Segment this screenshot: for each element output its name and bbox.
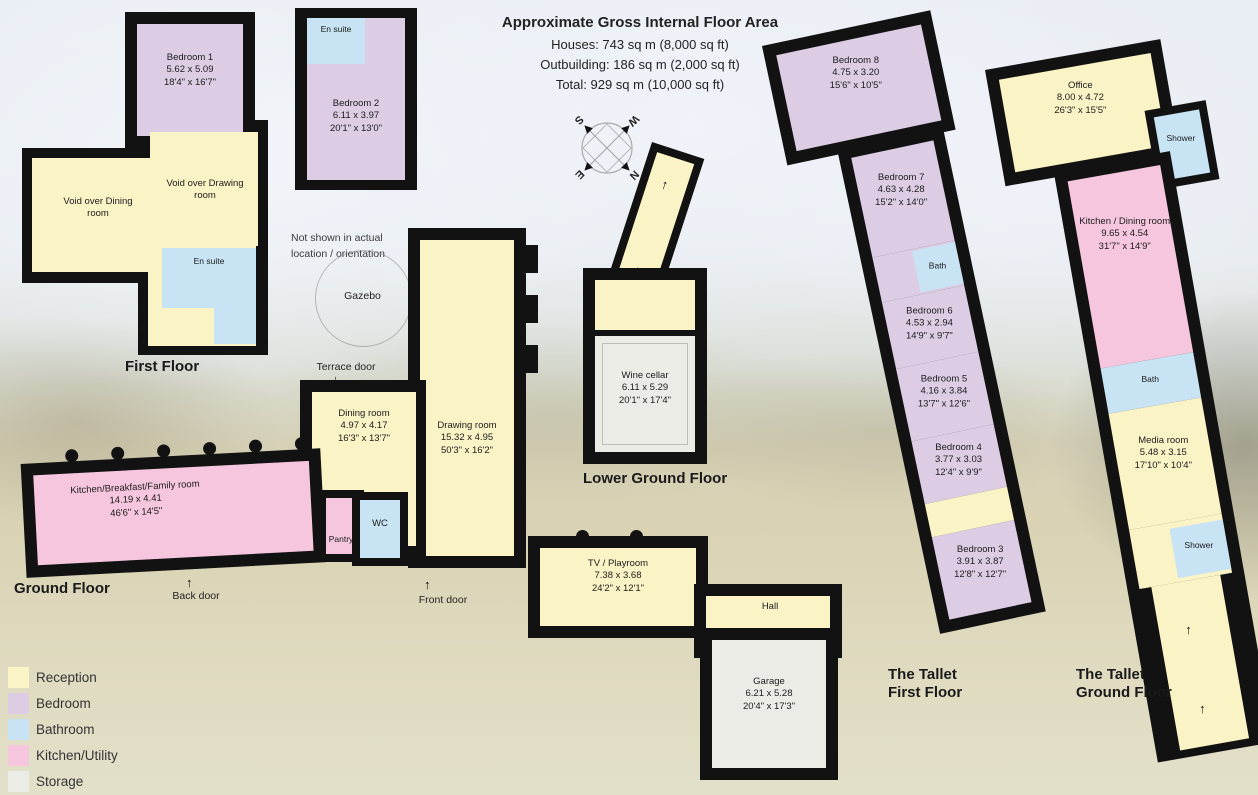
- room-en-suite-first-floor-lower: [214, 306, 256, 344]
- legend-swatch-storage: [8, 771, 29, 792]
- room-label-bedroom-5: Bedroom 5 4.16 x 3.84 13'7" x 12'6": [902, 374, 986, 411]
- room-label-media-room: Media room 5.48 x 3.15 17'10" x 10'4": [1116, 435, 1210, 472]
- room-label-shower-bottom: Shower: [1167, 540, 1231, 551]
- floor-label-first-floor: First Floor: [125, 358, 199, 376]
- floor-label-lower-ground: Lower Ground Floor: [583, 470, 727, 488]
- room-label-tv-playroom: TV / Playroom 7.38 x 3.68 24'2" x 12'1": [540, 558, 696, 595]
- legend-swatch-bathroom: [8, 719, 29, 740]
- room-label-garage: Garage 6.21 x 5.28 20'4" x 17'3": [712, 676, 826, 713]
- legend-label-reception: Reception: [36, 670, 97, 685]
- room-drawing-room: [420, 240, 514, 556]
- room-cellar-landing: [595, 280, 695, 330]
- room-label-bedroom-7: Bedroom 7 4.63 x 4.28 15'2" x 14'0": [859, 172, 943, 209]
- corridor-arrow: ↑: [1185, 623, 1192, 636]
- room-label-bath-t1: Bath: [916, 260, 960, 271]
- terrace-door-arrow: ↓: [332, 373, 339, 386]
- column-dot: [630, 530, 643, 543]
- floorplan-page: Approximate Gross Internal Floor Area Ho…: [0, 0, 1258, 795]
- room-label-bath-tg: Bath: [1103, 374, 1197, 385]
- back-door-arrow: ↑: [186, 576, 193, 589]
- legend-label-bathroom: Bathroom: [36, 722, 95, 737]
- legend-label-storage: Storage: [36, 774, 83, 789]
- room-label-void-dining: Void over Dining room: [62, 196, 134, 221]
- room-label-drawing-room: Drawing room 15.32 x 4.95 50'3" x 16'2": [420, 420, 514, 457]
- front-door-label: Front door: [405, 594, 481, 606]
- wall-buttress-3: [522, 345, 538, 373]
- room-label-void-drawing: Void over Drawing room: [160, 178, 250, 203]
- corridor-arrow: ↑: [1199, 702, 1206, 715]
- room-label-en-suite-ff: En suite: [189, 256, 229, 267]
- back-door-label: Back door: [158, 590, 234, 602]
- front-door-arrow: ↑: [424, 578, 431, 591]
- room-label-kitchen-dining: Kitchen / Dining room 9.65 x 4.54 31'7" …: [1078, 216, 1172, 253]
- legend-label-kitchen: Kitchen/Utility: [36, 748, 118, 763]
- kitchen-wing: Kitchen/Breakfast/Family room 14.19 x 4.…: [20, 436, 329, 592]
- column-dot: [576, 530, 589, 543]
- room-label-bedroom-2: Bedroom 2 6.11 x 3.97 20'1" x 13'0": [307, 98, 405, 135]
- room-label-bedroom-3: Bedroom 3 3.91 x 3.87 12'8" x 12'7": [938, 544, 1022, 581]
- page-title: Approximate Gross Internal Floor Area: [440, 14, 840, 31]
- room-label-bedroom-4: Bedroom 4 3.77 x 3.03 12'4" x 9'9": [917, 442, 1001, 479]
- room-label-bedroom-6: Bedroom 6 4.53 x 2.94 14'9" x 9'7": [887, 305, 971, 342]
- terrace-door-label: Terrace door: [296, 361, 396, 373]
- room-label-en-suite-b2: En suite: [318, 24, 354, 35]
- room-label-dining-room: Dining room 4.97 x 4.17 16'3" x 13'7": [312, 408, 416, 445]
- floor-label-ground-floor: Ground Floor: [14, 580, 110, 598]
- legend-swatch-reception: [8, 667, 29, 688]
- floor-label-tallet-ground: The Tallet Ground Floor: [1076, 666, 1172, 702]
- room-label-bedroom-1: Bedroom 1 5.62 x 5.09 18'4" x 16'7": [137, 52, 243, 89]
- room-label-wine-cellar: Wine cellar 6.11 x 5.29 20'1" x 17'4": [595, 370, 695, 407]
- room-label-hall: Hall: [740, 601, 800, 613]
- legend-swatch-bedroom: [8, 693, 29, 714]
- gazebo-label: Gazebo: [315, 290, 410, 302]
- wall-buttress-1: [522, 245, 538, 273]
- legend-swatch-kitchen: [8, 745, 29, 766]
- room-label-shower-top: Shower: [1146, 133, 1216, 144]
- room-label-wc: WC: [360, 518, 400, 530]
- room-label-bedroom-8: Bedroom 8 4.75 x 3.20 15'6" x 10'5": [782, 55, 930, 92]
- legend-label-bedroom: Bedroom: [36, 696, 91, 711]
- wall-buttress-2: [522, 295, 538, 323]
- floor-label-tallet-first: The Tallet First Floor: [888, 666, 962, 702]
- room-label-office: Office 8.00 x 4.72 26'3" x 15'5": [1003, 80, 1157, 117]
